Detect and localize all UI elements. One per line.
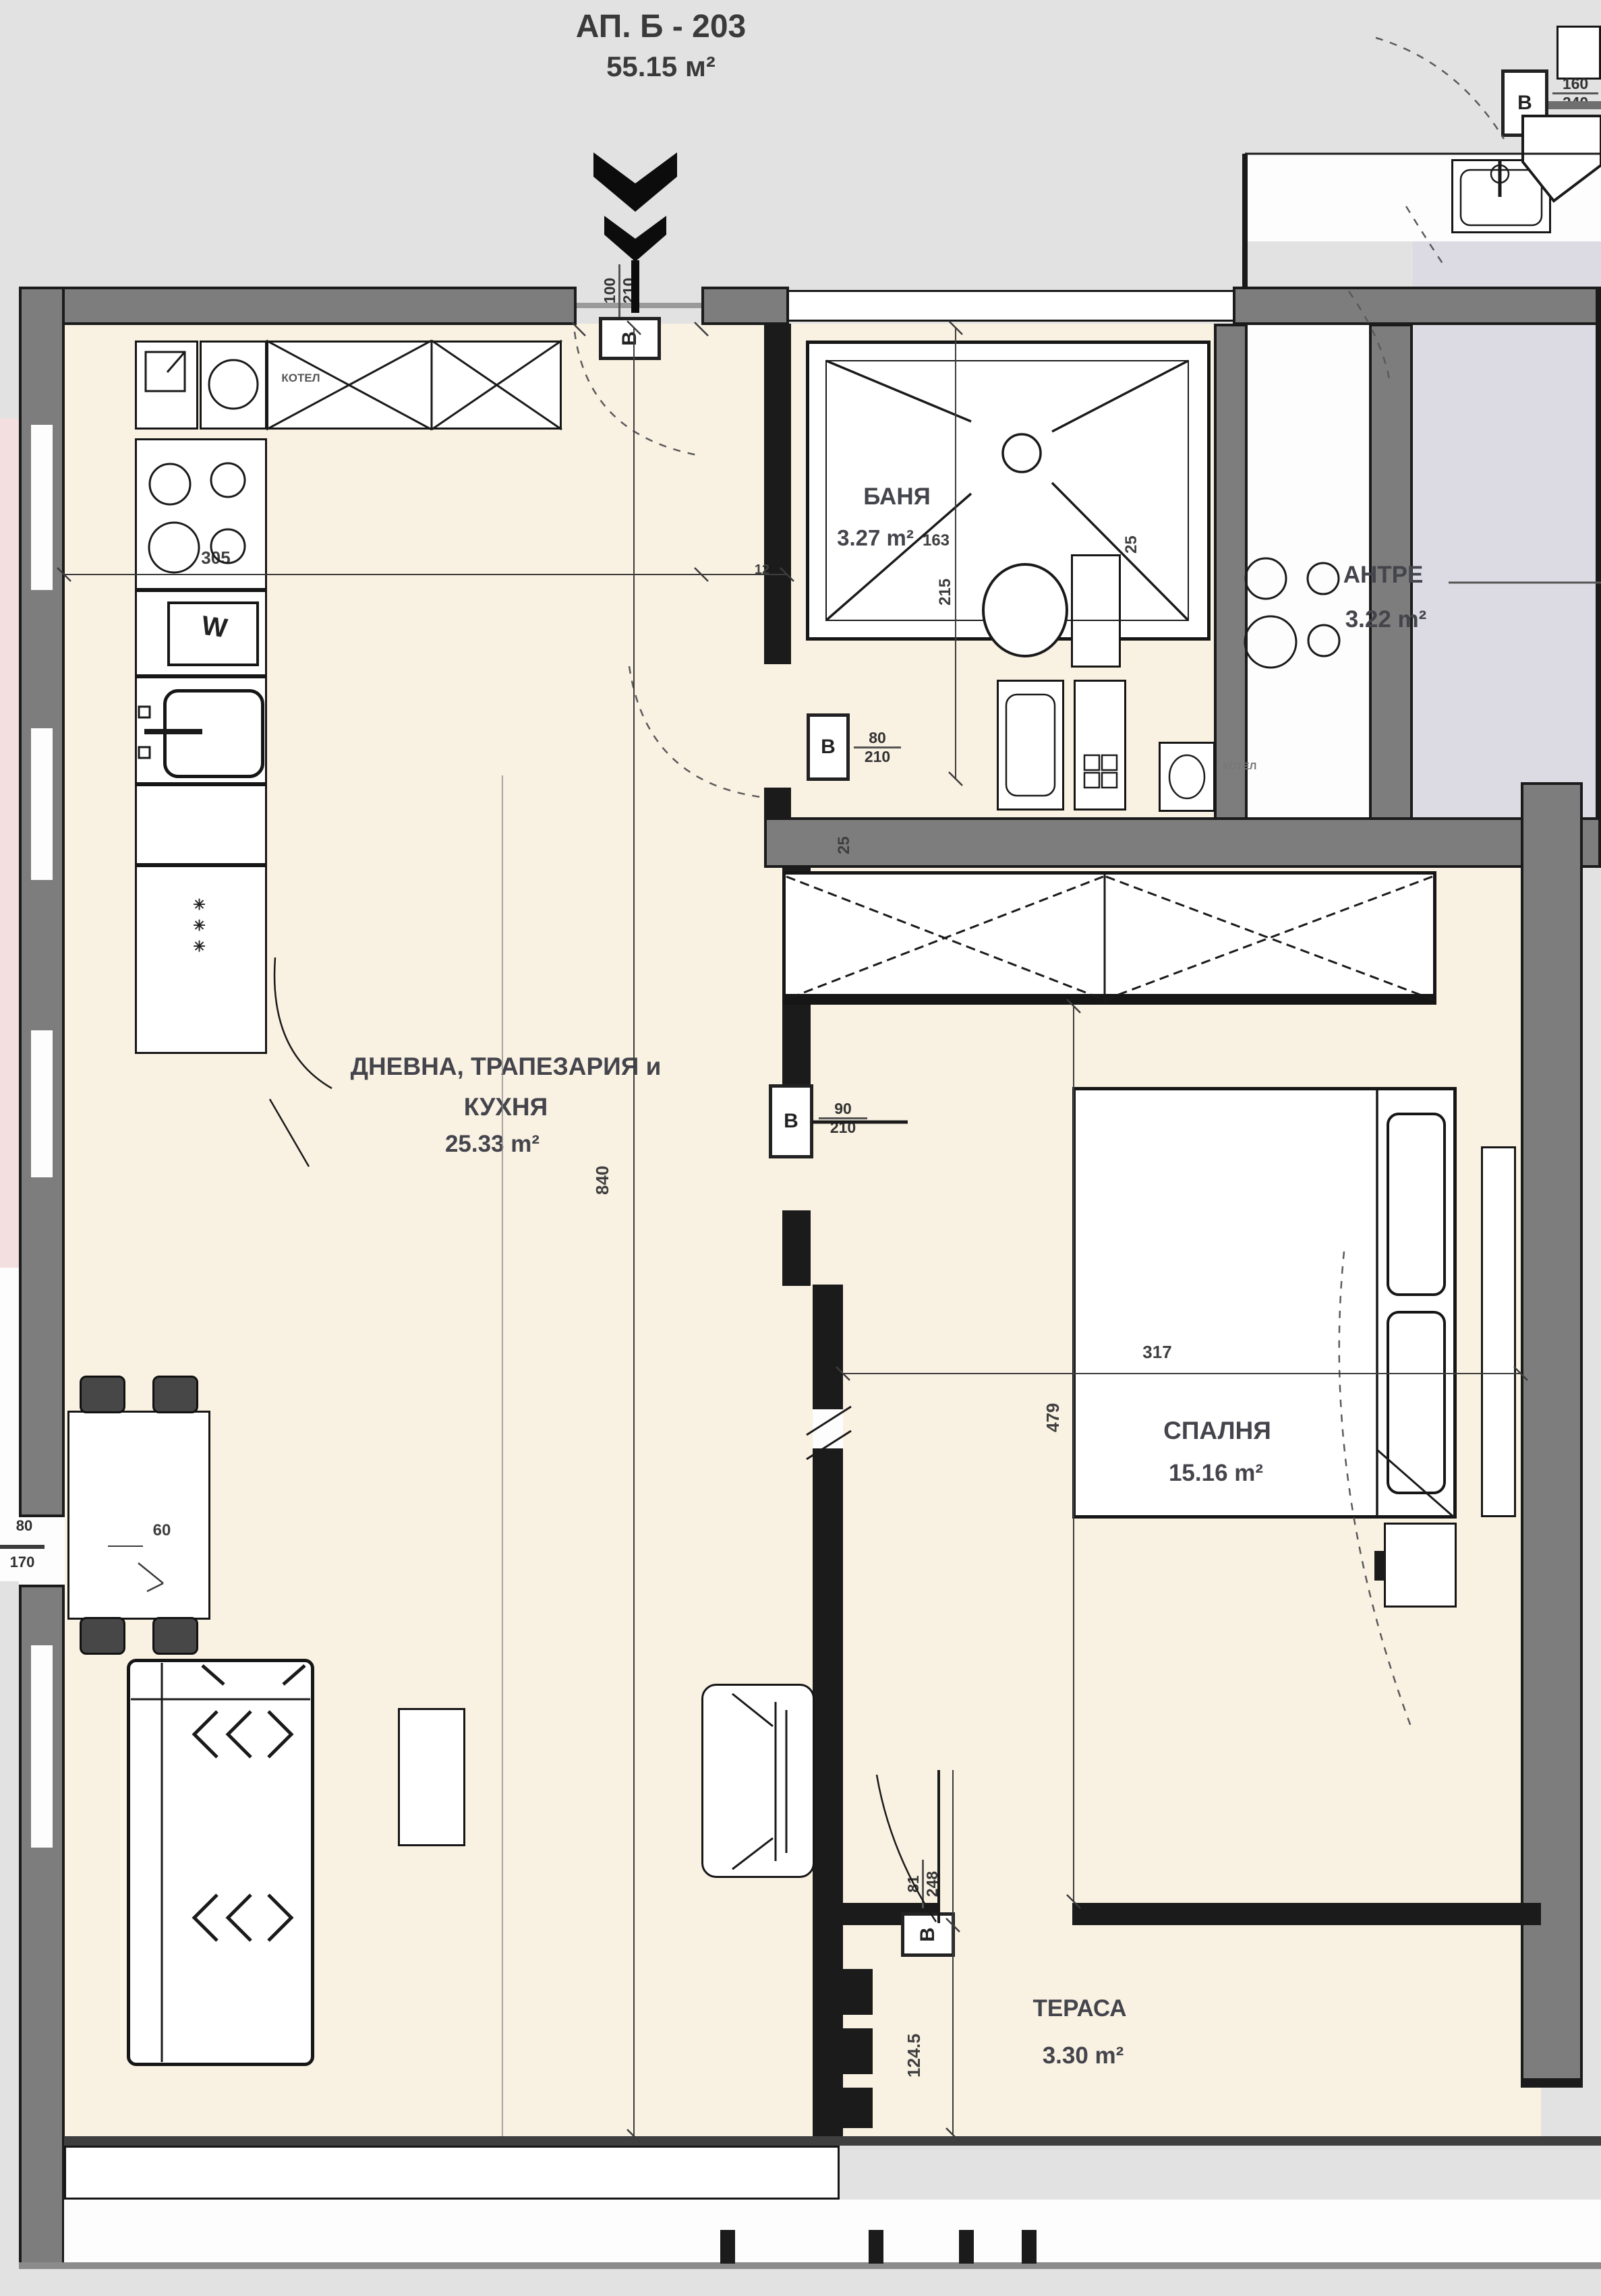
fridge-door-arc	[274, 958, 332, 1088]
sofa-chevrons	[194, 1666, 305, 1941]
basin-inner	[1006, 695, 1055, 796]
terrace-door-arc	[877, 1775, 936, 1922]
xcabinet-cross	[266, 341, 562, 430]
bath-washer-pattern	[1084, 755, 1117, 788]
wall-break-mark	[807, 1407, 851, 1459]
kitchen-faucet-icon	[139, 707, 202, 758]
corner-wall-piece	[1523, 116, 1601, 201]
toilet-bowl	[983, 564, 1067, 656]
bed-fold-line	[1377, 1450, 1454, 1517]
floor-plan: АП. Б - 203 55.15 м² КОТЕЛ W	[0, 0, 1601, 2296]
dimension-lines	[57, 321, 1527, 2143]
boiler-circle	[1169, 755, 1204, 798]
cabinet-sink-circle	[209, 360, 258, 409]
wardrobe-cross	[786, 877, 1432, 999]
antre-cooktop-icon	[1245, 558, 1339, 668]
plan-linework	[0, 0, 1601, 2296]
entrance-arrow-icon	[593, 152, 677, 313]
door-swing-arcs	[575, 38, 1504, 1726]
tv-lines	[732, 1694, 786, 1869]
hob-burners-icon	[149, 463, 245, 572]
